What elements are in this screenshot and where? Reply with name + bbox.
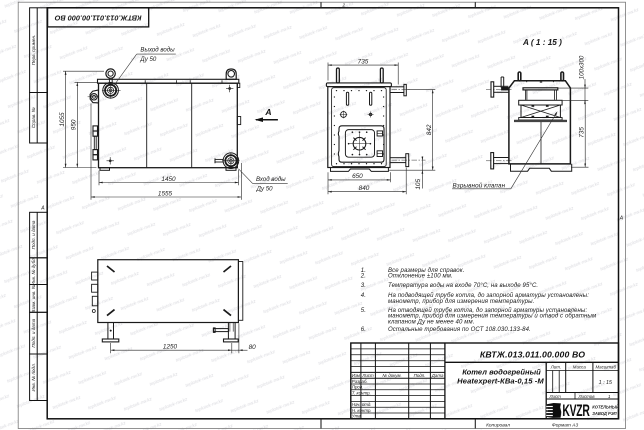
- svg-text:100х300: 100х300: [578, 55, 585, 79]
- svg-text:Пров.: Пров.: [352, 385, 364, 390]
- svg-text:Изм: Изм: [352, 373, 360, 378]
- svg-text:1450: 1450: [161, 176, 176, 183]
- svg-text:A ( 1 : 15 ): A ( 1 : 15 ): [522, 38, 562, 47]
- svg-text:Справ. №: Справ. №: [31, 107, 36, 128]
- svg-text:Листов: Листов: [578, 394, 596, 399]
- svg-text:80: 80: [249, 344, 257, 351]
- svg-text:A: A: [619, 216, 624, 222]
- svg-text:Масса: Масса: [573, 364, 587, 369]
- svg-text:1055: 1055: [59, 112, 66, 127]
- svg-text:№ докум.: № докум.: [382, 373, 401, 378]
- svg-text:4.: 4.: [361, 293, 366, 299]
- svg-text:6.: 6.: [361, 327, 366, 333]
- svg-text:Остальные требования по ОСТ 10: Остальные требования по ОСТ 108.030.133-…: [388, 327, 531, 333]
- svg-text:Подп.: Подп.: [414, 373, 426, 378]
- svg-text:Перв. примен.: Перв. примен.: [31, 35, 36, 66]
- svg-text:1 : 15: 1 : 15: [599, 380, 612, 386]
- svg-text:клапаном Ду не менее 40 мм.: клапаном Ду не менее 40 мм.: [388, 319, 475, 325]
- svg-text:Дата: Дата: [431, 373, 444, 378]
- svg-text:Выход воды: Выход воды: [140, 47, 175, 54]
- svg-text:735: 735: [579, 127, 586, 138]
- svg-text:1250: 1250: [163, 343, 178, 350]
- svg-text:Лит.: Лит.: [550, 364, 561, 369]
- svg-text:840: 840: [359, 185, 370, 192]
- svg-text:Формат А3: Формат А3: [552, 422, 579, 428]
- svg-text:950: 950: [71, 119, 78, 130]
- svg-text:Вход воды: Вход воды: [256, 176, 286, 183]
- svg-text:1555: 1555: [158, 190, 173, 197]
- svg-text:Масштаб: Масштаб: [595, 364, 616, 369]
- svg-text:Инв. № подл.: Инв. № подл.: [31, 363, 36, 392]
- svg-text:Разраб.: Разраб.: [352, 379, 368, 384]
- svg-text:A: A: [264, 107, 271, 117]
- svg-text:манометр, прибор для измерения: манометр, прибор для измерения температу…: [388, 299, 534, 305]
- svg-text:3.: 3.: [361, 283, 366, 289]
- svg-text:Подп. и дата: Подп. и дата: [31, 318, 36, 347]
- svg-text:Heatexpert-КВа-0,15 -М: Heatexpert-КВа-0,15 -М: [457, 377, 544, 386]
- svg-text:2.: 2.: [360, 273, 366, 279]
- svg-text:Взам. инв. №: Взам. инв. №: [31, 284, 36, 312]
- svg-text:ЗАВОД РЭП: ЗАВОД РЭП: [592, 411, 617, 416]
- svg-text:Взрывной клапан: Взрывной клапан: [453, 182, 506, 190]
- svg-text:Ду 50: Ду 50: [256, 186, 273, 193]
- svg-text:2: 2: [342, 3, 346, 8]
- svg-text:КВТЖ.013.011.00.000 ВО: КВТЖ.013.011.00.000 ВО: [480, 350, 585, 360]
- svg-text:KVZR: KVZR: [562, 402, 590, 420]
- svg-text:Отклонение ±100 мм.: Отклонение ±100 мм.: [388, 273, 453, 279]
- svg-text:Н. контр.: Н. контр.: [352, 408, 372, 413]
- svg-text:842: 842: [426, 124, 433, 135]
- svg-text:Ду 50: Ду 50: [139, 56, 156, 63]
- svg-text:КВТЖ.013.011.00.000 ВО: КВТЖ.013.011.00.000 ВО: [55, 13, 142, 22]
- svg-text:Лист: Лист: [361, 373, 374, 378]
- svg-text:Лист: Лист: [549, 394, 562, 399]
- svg-text:650: 650: [352, 173, 363, 180]
- svg-text:Т. контр.: Т. контр.: [352, 391, 371, 396]
- svg-text:Копировал: Копировал: [486, 422, 510, 428]
- svg-text:Подп. и дата: Подп. и дата: [31, 220, 36, 249]
- svg-text:735: 735: [358, 58, 369, 65]
- svg-text:Котел водогрейный: Котел водогрейный: [462, 368, 541, 377]
- svg-text:Утв.: Утв.: [352, 414, 362, 419]
- svg-text:КОТЕЛЬНЫЙ: КОТЕЛЬНЫЙ: [592, 404, 620, 409]
- svg-text:A: A: [40, 206, 45, 212]
- svg-text:5.: 5.: [361, 308, 366, 314]
- svg-text:105: 105: [415, 179, 422, 190]
- svg-text:Нач. отд.: Нач. отд.: [352, 402, 372, 407]
- svg-text:Температура воды на входе 70°С: Температура воды на входе 70°С, на выход…: [388, 283, 538, 289]
- svg-text:Инв. № дубл.: Инв. № дубл.: [31, 257, 36, 285]
